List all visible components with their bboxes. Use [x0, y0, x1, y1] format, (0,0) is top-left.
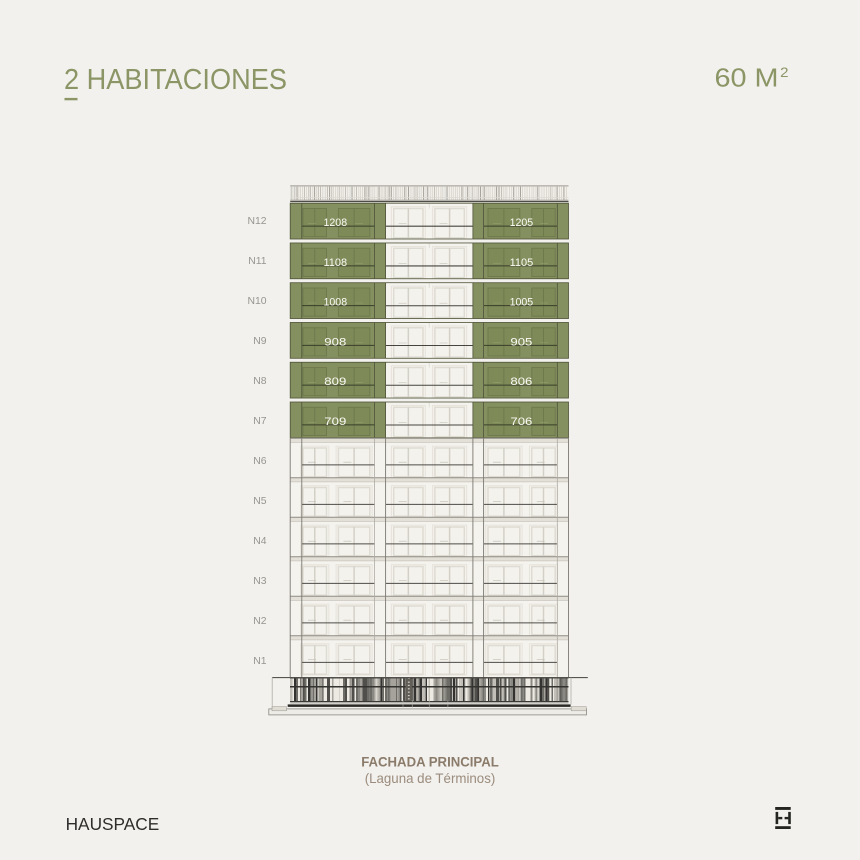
- svg-text:60 M: 60 M: [715, 63, 779, 93]
- svg-text:N10: N10: [247, 296, 266, 307]
- svg-text:(Laguna de Términos): (Laguna de Términos): [365, 771, 496, 786]
- svg-text:N11: N11: [248, 256, 267, 267]
- svg-text:1005: 1005: [510, 297, 534, 309]
- svg-text:N2: N2: [253, 616, 267, 627]
- svg-text:N5: N5: [253, 496, 267, 507]
- svg-text:N6: N6: [253, 456, 267, 467]
- svg-text:1105: 1105: [510, 257, 534, 269]
- svg-text:2: 2: [780, 64, 789, 80]
- svg-text:1008: 1008: [324, 297, 348, 309]
- svg-text:N9: N9: [253, 336, 267, 347]
- svg-text:HAUSPACE: HAUSPACE: [66, 814, 160, 834]
- svg-text:N1: N1: [253, 656, 267, 667]
- svg-text:N4: N4: [253, 536, 267, 547]
- svg-text:N3: N3: [253, 576, 267, 587]
- svg-text:N8: N8: [253, 376, 267, 387]
- svg-text:709: 709: [324, 416, 346, 428]
- svg-text:809: 809: [324, 376, 346, 388]
- svg-text:806: 806: [510, 376, 532, 388]
- svg-text:N7: N7: [253, 416, 267, 427]
- svg-text:1208: 1208: [324, 217, 348, 229]
- svg-text:905: 905: [510, 336, 532, 348]
- svg-text:1108: 1108: [324, 257, 348, 269]
- svg-text:FACHADA PRINCIPAL: FACHADA PRINCIPAL: [361, 755, 499, 770]
- svg-text:1205: 1205: [510, 217, 534, 229]
- svg-text:908: 908: [324, 336, 346, 348]
- svg-text:706: 706: [510, 416, 532, 428]
- svg-text:N12: N12: [247, 216, 266, 227]
- svg-text:2 HABITACIONES: 2 HABITACIONES: [64, 64, 287, 96]
